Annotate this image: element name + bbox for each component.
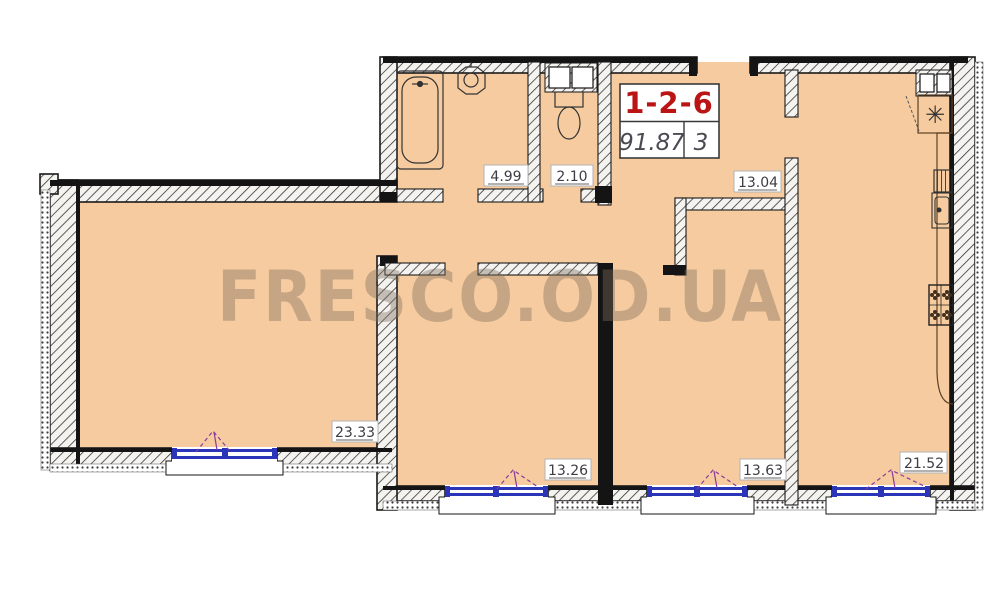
area-value-bedroom1: 13.26 (548, 463, 588, 479)
living-door-jamb-top (380, 192, 397, 202)
area-value-kitchen: 21.52 (904, 456, 944, 472)
wc-vent-duct-1 (549, 67, 570, 88)
kitchen-vent-duct-2 (937, 74, 950, 92)
unit-number: 1-2-6 (624, 86, 714, 120)
floor-plan-canvas: ✳ (0, 0, 998, 600)
entrance-jamb-right (750, 57, 758, 76)
window-living (166, 447, 283, 475)
window-bedroom2 (641, 485, 754, 514)
wall-bath-wc-divider (528, 62, 540, 202)
wall-wc-east (598, 62, 611, 205)
area-label-wc: 2.10 (551, 165, 593, 186)
area-label-hallway: 13.04 (734, 171, 781, 192)
area-label-bedroom2: 13.63 (740, 459, 786, 480)
wall-bath-bottom-a (397, 189, 443, 202)
window-kitchen (826, 485, 936, 514)
area-value-bathroom: 4.99 (490, 169, 521, 185)
entrance-jamb-left (689, 57, 697, 76)
area-label-living: 23.33 (332, 421, 378, 442)
unit-total-area: 91.87 (619, 130, 685, 156)
window-bedroom1 (439, 485, 555, 514)
unit-room-count: 3 (694, 130, 709, 156)
area-label-bathroom: 4.99 (484, 165, 528, 186)
area-value-wc: 2.10 (556, 169, 587, 185)
wall-living-left (50, 180, 78, 470)
area-value-living: 23.33 (335, 425, 375, 441)
area-value-bedroom2: 13.63 (743, 463, 783, 479)
area-label-bedroom1: 13.26 (545, 459, 591, 480)
wall-hall-bedroom2-horiz (675, 198, 798, 210)
area-value-hallway: 13.04 (738, 175, 778, 191)
wall-wc-corner-block (595, 186, 612, 203)
wall-kitchen-west-upper (785, 70, 798, 117)
area-label-kitchen: 21.52 (900, 452, 947, 473)
kitchen-vent-duct-1 (920, 74, 934, 92)
kitchen-dish-dryer (934, 170, 952, 192)
wall-kitchen-west-lower (785, 158, 798, 505)
wall-west-upper (380, 57, 397, 200)
floor-plan: ✳ (0, 0, 998, 600)
unit-info-box: 1-2-6 91.87 3 (619, 84, 719, 158)
vent-asterisk-icon: ✳ (925, 101, 945, 129)
wc-vent-duct-2 (572, 67, 593, 88)
watermark-text: FRESCO.OD.UA (217, 256, 783, 338)
